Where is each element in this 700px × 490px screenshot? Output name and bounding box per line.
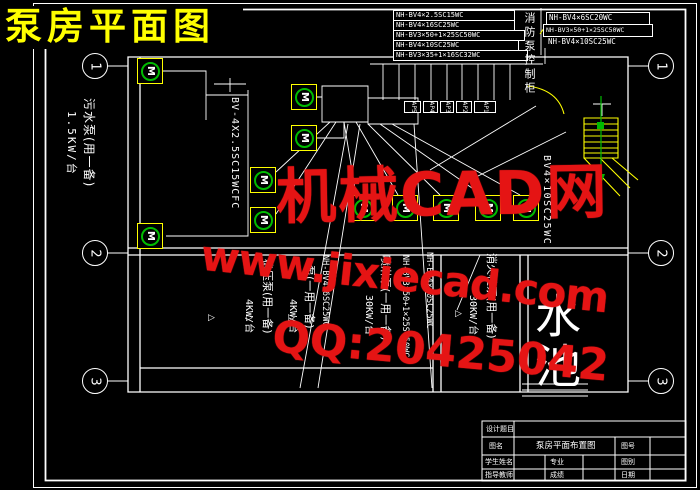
control-cabinet-label: 消防泵控制柜 [521,12,537,132]
titleblock-major-label: 专业 [550,459,564,466]
titleblock-grade-label: 成绩 [550,472,564,479]
titleblock-number-label: 图号 [621,443,635,450]
titleblock-drawing-name: 泵房平面布置图 [536,442,596,451]
titleblock-project-label: 设计题目 [486,426,514,433]
watermark-brand: 机械CAD网 [275,143,609,236]
titleblock-name-label: 图名 [489,443,503,450]
cad-sheet: 泵房平面图 NH-BV4×2.5SC15WC NH-BV4×16SC25WC N… [0,0,700,490]
page-title: 泵房平面图 [3,6,243,49]
titleblock-date-label: 日期 [621,472,635,479]
cable-label: NH-BV4×10SC25WC [548,37,616,46]
titleblock-category-label: 图别 [621,459,635,466]
cable-label-stack: NH-BV4×2.5SC15WC NH-BV4×16SC25WC NH-BV3×… [393,10,528,61]
titleblock-student-label: 学生姓名 [485,459,513,466]
title-block-grid [0,0,700,490]
titleblock-advisor-label: 指导教师 [485,472,513,479]
cable-label: NH-BV3×50+1×25SC50WC [543,24,653,37]
cable-label: NH-BV3×35+1×16SC32WC [393,50,528,61]
